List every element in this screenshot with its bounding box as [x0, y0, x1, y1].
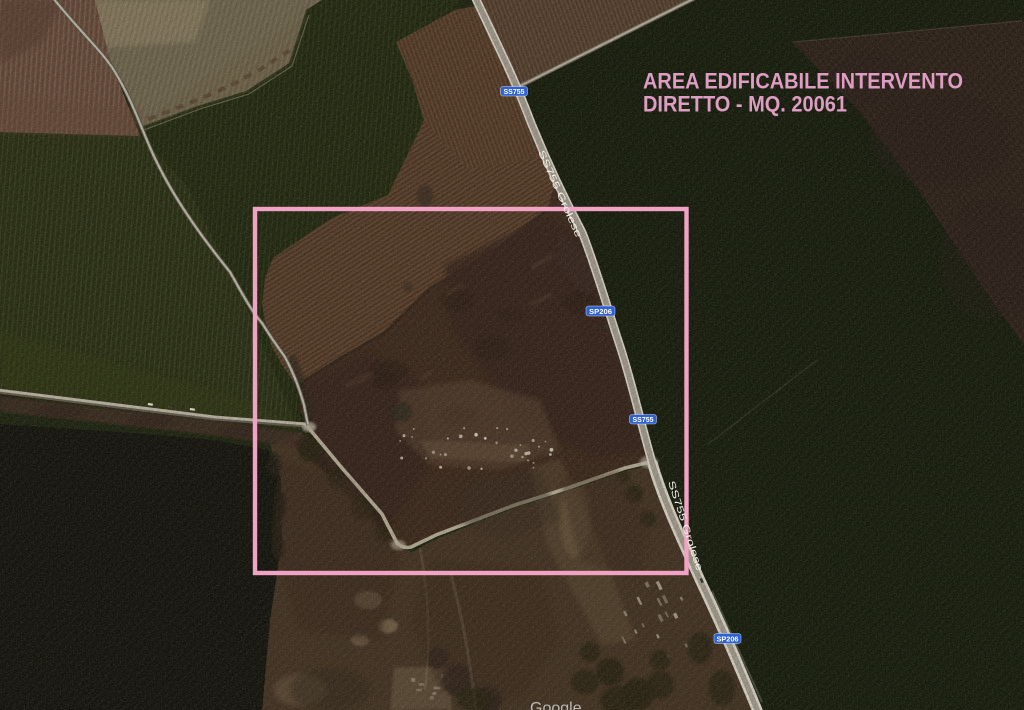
- svg-text:SS755: SS755: [504, 87, 525, 96]
- svg-text:Google: Google: [530, 700, 582, 710]
- svg-text:SP206: SP206: [717, 635, 739, 644]
- svg-text:SP206: SP206: [589, 307, 612, 316]
- svg-text:AREA EDIFICABILE INTERVENTO: AREA EDIFICABILE INTERVENTO: [643, 69, 963, 94]
- svg-text:DIRETTO - MQ. 20061: DIRETTO - MQ. 20061: [643, 92, 847, 117]
- svg-text:SS755: SS755: [633, 415, 654, 424]
